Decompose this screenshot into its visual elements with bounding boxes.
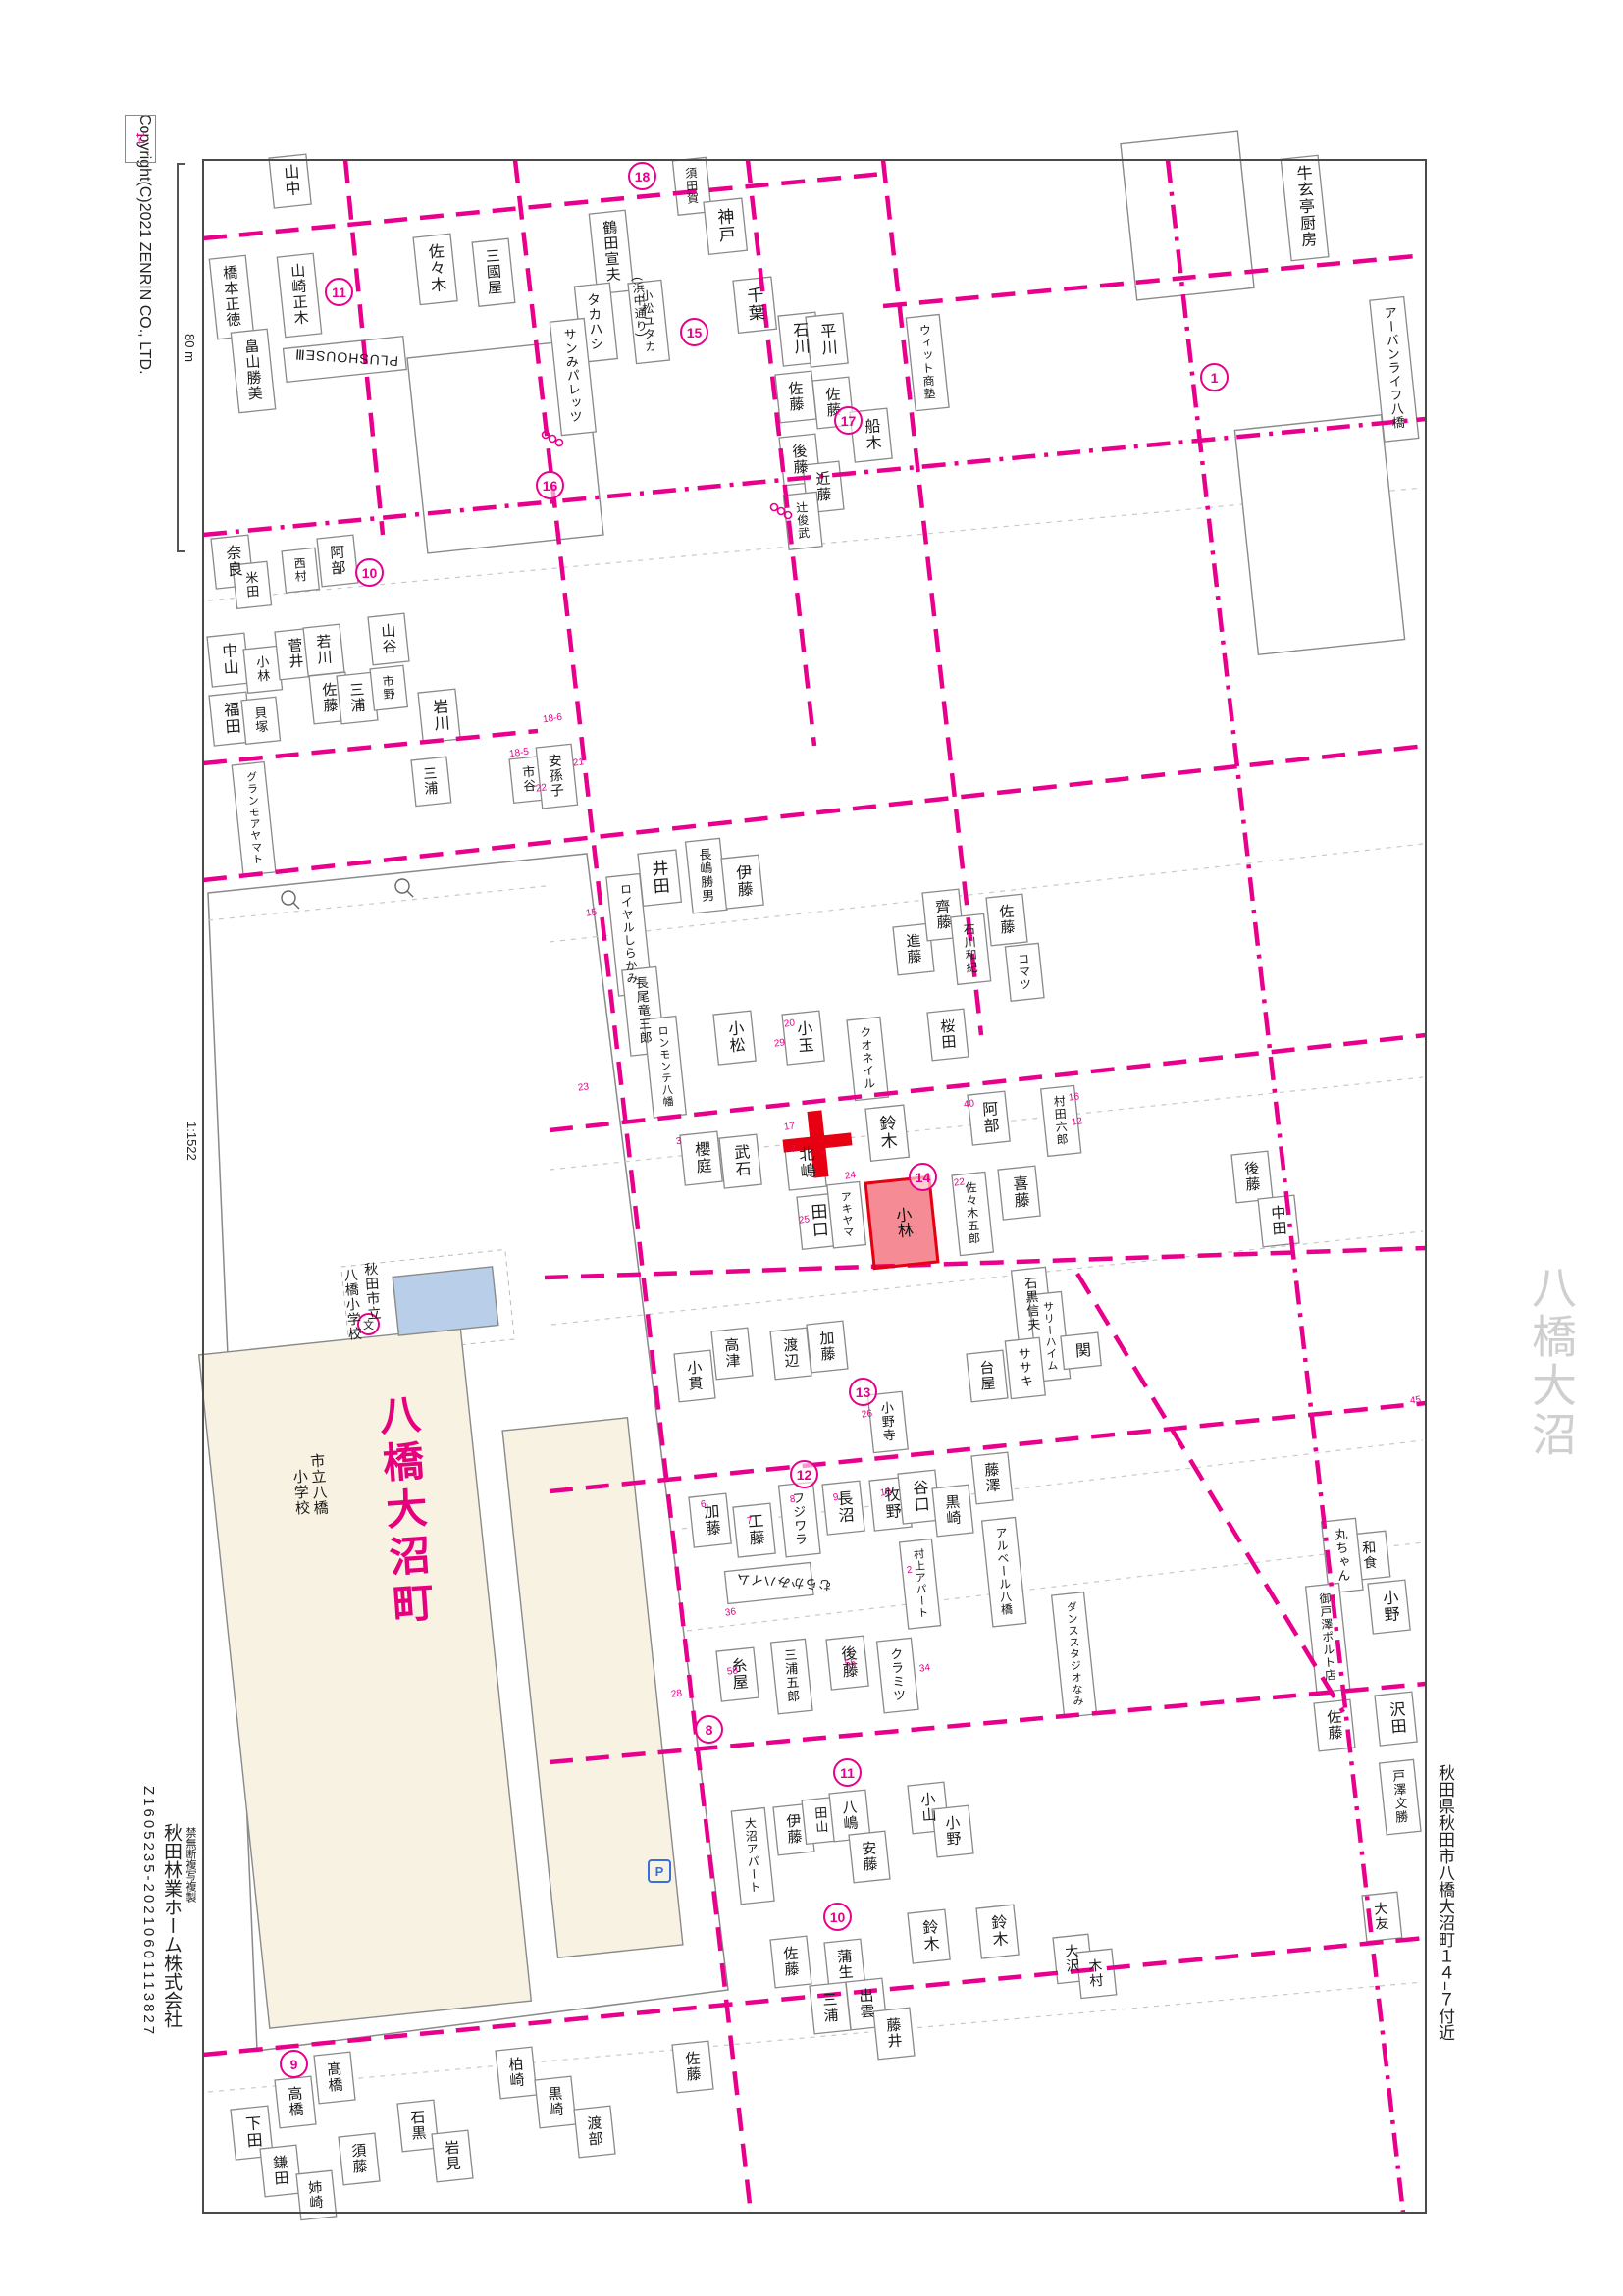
lot-number: 40 (963, 1098, 975, 1110)
lot-number: 36 (724, 1606, 737, 1618)
map-label: 市野 (381, 675, 395, 702)
map-label: 進藤 (904, 932, 921, 965)
company-name: 秋田林業ホーム株式会社 (158, 1823, 184, 2028)
map-label: 藤澤 (982, 1461, 1000, 1493)
map-address: 秋田県秋田市八橋大沼町１４−７付近 (1433, 1764, 1457, 2041)
lot-number: 12 (1071, 1116, 1083, 1127)
map-label: 藤井 (884, 2016, 902, 2049)
map-label: 石川 (789, 321, 808, 355)
map-label: 高橋 (286, 2085, 303, 2117)
map-label: 中田 (1269, 1204, 1286, 1236)
lot-number: 22 (535, 782, 548, 794)
building-footprint (1121, 131, 1254, 300)
map-label: 渡部 (585, 2114, 602, 2147)
lot-number: 25 (798, 1214, 811, 1226)
district-ghost-label: 八橋大沼 (1519, 1264, 1584, 1460)
block-number-badge: 10 (355, 558, 384, 587)
map-label: 小野 (1379, 1589, 1397, 1623)
map-label: 戸澤文勝 (1390, 1769, 1408, 1825)
map-label: 加藤 (817, 1330, 835, 1362)
map-label: 小野 (943, 1814, 961, 1847)
parking-icon: P (648, 1859, 671, 1883)
map-label: 木村 (1087, 1958, 1104, 1989)
map-label: 市谷 (520, 765, 536, 794)
map-label: 辻俊武 (795, 501, 810, 541)
map-label: 須藤 (349, 2142, 367, 2174)
map-label: 石川和紀 (962, 923, 977, 975)
map-label: 安孫子 (547, 754, 564, 799)
map-label: 千葉 (744, 286, 763, 322)
map-label: 高津 (722, 1336, 740, 1369)
map-label: 佐々木 (424, 242, 444, 293)
map-label: コマツ (1017, 953, 1031, 992)
map-label: アキヤマ (838, 1191, 853, 1239)
block-number-badge: 9 (280, 2050, 308, 2078)
lot-number: 21 (572, 757, 585, 768)
map-label: 佐藤 (683, 2050, 701, 2082)
map-label: 佐藤 (320, 681, 338, 713)
map-label: 丸ちゃん (1333, 1528, 1350, 1584)
lot-number: 15 (585, 907, 598, 918)
lot-number: 7 (790, 1144, 797, 1156)
map-label: 鈴木 (987, 1913, 1006, 1948)
map-label: 船木 (861, 417, 879, 451)
block-number-badge: 13 (849, 1378, 877, 1406)
map-label: 佐藤 (781, 1945, 799, 1977)
map-label: 出雲 (857, 1987, 874, 2019)
lot-number: 6 (700, 1499, 707, 1511)
map-label: 鶴田宣夫 (601, 220, 620, 284)
map-label: 三浦 (422, 766, 439, 797)
map-label: 下田 (241, 2114, 260, 2149)
sheet-number-box: 14 (125, 115, 156, 163)
signal-dots-icon (778, 508, 785, 515)
map-label: 佐藤 (786, 380, 804, 412)
map-label: 山崎正木 (288, 263, 308, 327)
block-number-badge: 16 (536, 471, 564, 499)
lot-number: 45 (1409, 1394, 1422, 1406)
map-label: 武石 (730, 1143, 749, 1177)
serial-number: Z1605235-20210601113827 (140, 1786, 157, 2037)
map-label: 平川 (816, 322, 835, 356)
map-label: 伊藤 (784, 1812, 802, 1845)
parking-letter: P (655, 1864, 664, 1879)
lot-number: 7 (746, 1516, 753, 1528)
road-line (203, 746, 1426, 880)
map-label: 小玉 (793, 1019, 811, 1054)
map-label: 後藤 (790, 443, 808, 475)
lot-number: 55 (844, 1657, 857, 1669)
block-number-badge: 10 (823, 1903, 852, 1931)
lot-number: 28 (670, 1688, 683, 1699)
map-label: 櫻庭 (691, 1140, 709, 1174)
scale-label: 80 m (183, 334, 197, 362)
scale-ratio: 1:1522 (184, 1122, 199, 1161)
map-label: 髙橋 (325, 2061, 342, 2093)
map-label: 石黒信夫 (1022, 1277, 1040, 1332)
block-number-badge: 15 (680, 318, 708, 346)
lot-number: 22 (953, 1176, 966, 1188)
zenrin-map-sheet: Copyright(C)2021 ZENRIN CO., LTD. 80 m 1… (0, 0, 1623, 2296)
sheet-number: 14 (134, 132, 146, 144)
map-label: 鈴木 (918, 1918, 937, 1953)
map-label: 関 (1071, 1341, 1088, 1359)
map-label: タカハシ (586, 292, 604, 352)
map-label: 小貫 (685, 1359, 703, 1391)
map-label: 貝塚 (252, 706, 268, 735)
map-label: 蒲生 (835, 1948, 853, 1980)
lot-number: 8 (789, 1494, 796, 1506)
map-label: 米田 (243, 571, 259, 600)
map-label: 大友 (1373, 1902, 1389, 1932)
lot-number: 20 (783, 1018, 796, 1029)
building-footprint (1234, 415, 1404, 654)
map-label: 小学校 (290, 1469, 309, 1517)
map-label: 井田 (649, 859, 668, 895)
map-label: 阿部 (328, 544, 345, 576)
map-label: 姉崎 (307, 2180, 324, 2211)
map-label: 和食 (1361, 1540, 1378, 1571)
map-label: 村田六郎 (1052, 1095, 1068, 1147)
map-label: 小林 (254, 655, 270, 684)
map-label: 桜田 (938, 1018, 956, 1050)
map-label: 菅井 (286, 637, 303, 669)
block-number-badge: 8 (695, 1715, 723, 1744)
school-pool (393, 1267, 498, 1335)
block-number-badge: 17 (834, 406, 863, 435)
map-label: 石黒 (408, 2109, 426, 2141)
lot-number: 23 (577, 1081, 590, 1093)
map-label: 山中 (280, 163, 298, 197)
block-number-badge: 12 (790, 1460, 818, 1488)
map-label: 三浦五郎 (782, 1648, 800, 1704)
block-number-badge: 18 (628, 162, 656, 190)
no-copy-notice: 禁無断複写複製 (183, 1827, 198, 1903)
lot-number: 58 (726, 1665, 739, 1677)
map-label: 三浦 (820, 1991, 838, 2023)
map-label: 近藤 (813, 470, 831, 502)
map-label: クラミツ (888, 1647, 906, 1703)
map-label: 神戸 (714, 207, 734, 243)
lot-number: 16 (1068, 1091, 1080, 1103)
map-label: 小野寺 (879, 1401, 896, 1443)
map-label: 黒崎 (546, 2085, 563, 2117)
map-label: 田山 (812, 1806, 828, 1835)
scale-bar (177, 163, 179, 552)
map-label: 若川 (314, 633, 332, 665)
map-label: 三浦 (347, 681, 365, 713)
lot-number: 34 (918, 1662, 931, 1674)
lot-number: 29 (773, 1037, 786, 1049)
lot-number: 2 (906, 1565, 913, 1577)
map-label: 沢田 (1386, 1700, 1404, 1735)
lot-number: 9 (832, 1492, 839, 1504)
map-label: ササキ (1017, 1347, 1033, 1389)
lot-number: 17 (783, 1121, 796, 1132)
map-label: 長嶋勝男 (697, 848, 714, 904)
map-label: 阿部 (978, 1100, 997, 1134)
map-label: 谷口 (909, 1479, 927, 1513)
map-label: 橋本正徳 (221, 265, 240, 329)
map-label: 小山 (918, 1791, 936, 1823)
map-label: 岩見 (443, 2139, 460, 2171)
map-label: 北嶋 (795, 1145, 813, 1179)
map-label: 鎌田 (271, 2154, 288, 2186)
map-label: 福田 (220, 701, 238, 735)
lot-number: 10 (879, 1487, 892, 1498)
map-label: 柏崎 (506, 2056, 524, 2088)
map-label: 田口 (808, 1202, 827, 1238)
lot-number: 24 (844, 1170, 857, 1181)
map-label: 岩川 (429, 698, 447, 732)
map-label: 三國屋 (483, 248, 501, 296)
map-label: 市立八橋 (308, 1453, 328, 1517)
map-label: 喜藤 (1009, 1174, 1027, 1209)
map-label: 山谷 (379, 622, 396, 654)
map-label: 須田賀 (684, 167, 699, 206)
map-label: 中山 (218, 642, 236, 676)
highlighted-parcel-label: 小林 (888, 1206, 915, 1239)
block-number-badge: 11 (325, 278, 353, 306)
map-label: 奈良 (222, 544, 240, 578)
map-label: 黒崎 (943, 1493, 961, 1526)
map-label: 西村 (292, 557, 307, 584)
map-label: 佐藤 (1325, 1708, 1342, 1741)
signal-dots-icon (771, 504, 778, 511)
map-label: 鈴木 (876, 1114, 896, 1150)
lot-number: 26 (861, 1408, 873, 1420)
block-number-badge: 1 (1200, 363, 1229, 391)
block-number-badge: 14 (909, 1163, 937, 1191)
map-label: 後藤 (1242, 1160, 1260, 1192)
map-label: 伊藤 (732, 863, 751, 898)
block-number-badge: 11 (833, 1758, 862, 1787)
map-label: 小松 (724, 1019, 743, 1054)
lot-number: 3 (675, 1136, 682, 1148)
map-label: 畠山勝美 (242, 339, 262, 402)
map-label: 安藤 (860, 1840, 877, 1872)
map-label: 秋田市立 (363, 1262, 382, 1322)
map-label: 佐藤 (997, 903, 1015, 935)
map-label: 台屋 (977, 1359, 995, 1391)
map-label: 齊藤 (933, 898, 951, 930)
map-label: 大沢 (1064, 1944, 1080, 1974)
map-label: 八嶋 (840, 1799, 858, 1831)
map-label: 渡辺 (781, 1336, 799, 1369)
